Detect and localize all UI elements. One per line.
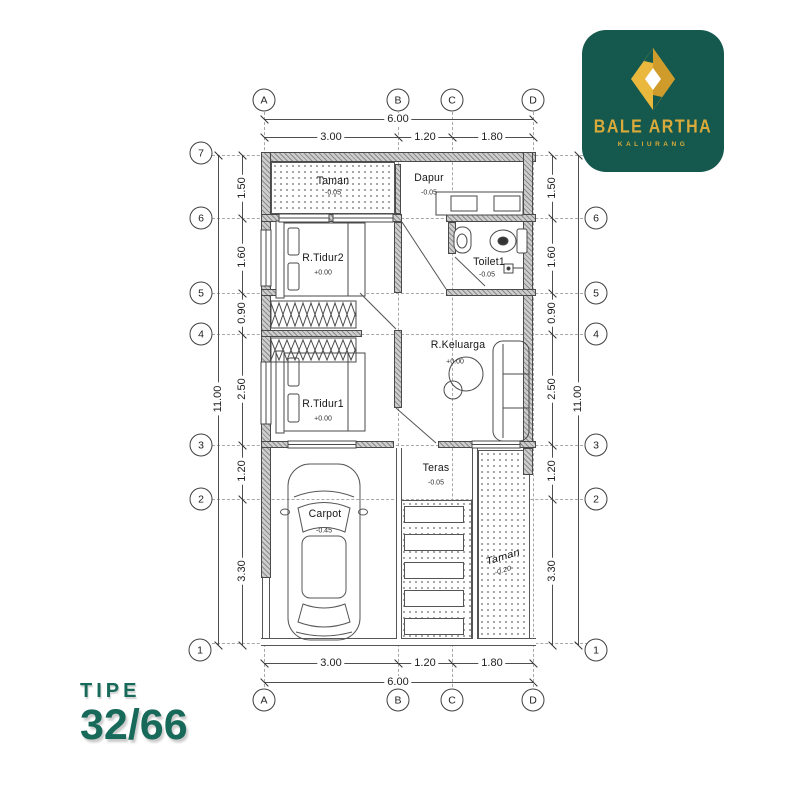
grid-line-col-d: [533, 112, 534, 692]
dim-top-seg-3: 1.80: [478, 131, 505, 143]
floor-drain-icon: [504, 264, 523, 273]
logo-title: BALE ARTHA: [594, 118, 712, 139]
room-label-rtidur1: R.Tidur1: [302, 398, 343, 411]
grid-bubble-row-2-right: 2: [585, 488, 608, 511]
grid-bubble-col-c-bottom: C: [441, 689, 464, 712]
grid-bubble-row-4-left: 4: [190, 323, 213, 346]
dim-right-seg-4: 2.50: [546, 375, 558, 402]
dim-left-seg-3: 0.90: [236, 299, 248, 326]
wall-right: [523, 152, 533, 448]
type-label: TIPE 32/66: [80, 681, 188, 747]
dim-right-total: 11.00: [572, 383, 584, 416]
dim-bottom-seg-3: 1.80: [478, 657, 505, 669]
grid-bubble-col-b-top: B: [387, 89, 410, 112]
dim-bottom-seg-2: 1.20: [411, 657, 438, 669]
room-elevation-toilet1: -0.05: [479, 272, 495, 279]
stepping-stone: [404, 618, 464, 635]
wall-row5-toilet: [446, 289, 536, 296]
dim-right-seg-6: 3.30: [546, 557, 558, 584]
garden-area-top: [271, 162, 395, 214]
wall-row3-west: [261, 441, 394, 448]
room-elevation-rtidur1: +0.00: [314, 416, 332, 423]
grid-bubble-row-5-left: 5: [190, 282, 213, 305]
dim-bottom-seg-1: 3.00: [317, 657, 344, 669]
dim-right-seg-3: 0.90: [546, 299, 558, 326]
plot-bottom-edge: [261, 638, 536, 646]
wall-top: [261, 152, 536, 162]
dim-right-seg-2: 1.60: [546, 243, 558, 270]
wall-stub-right: [523, 448, 533, 475]
garden-area-bottom: [478, 450, 530, 639]
grid-bubble-row-4-right: 4: [585, 323, 608, 346]
toilet-icon: [490, 229, 527, 253]
logo-subtitle: KALIURANG: [618, 141, 689, 148]
brand-logo: BALE ARTHA KALIURANG: [582, 30, 724, 172]
grid-bubble-row-3-left: 3: [190, 434, 213, 457]
diamond-logo-icon: [630, 47, 676, 111]
wall-row5-west: [261, 289, 362, 296]
wall-col-b-upper: [394, 222, 402, 293]
grid-bubble-row-1-left: 1: [189, 639, 212, 662]
dim-left-seg-4: 2.50: [236, 375, 248, 402]
stepping-stone: [404, 590, 464, 607]
sink-icon: [454, 227, 471, 253]
room-label-taman-top: Taman: [317, 175, 350, 188]
stepping-stone: [404, 534, 464, 551]
grid-bubble-col-d-top: D: [522, 89, 545, 112]
grid-bubble-row-1-right: 1: [585, 639, 608, 662]
dim-top-seg-2: 1.20: [411, 131, 438, 143]
room-label-dapur: Dapur: [414, 172, 444, 185]
type-prefix: TIPE: [80, 681, 188, 701]
wall-row6-east: [446, 214, 536, 222]
carport-left-edge: [262, 578, 270, 640]
room-label-teras: Teras: [423, 462, 450, 475]
room-elevation-dapur: -0.05: [421, 190, 437, 197]
dim-top-seg-1: 3.00: [317, 131, 344, 143]
type-value: 32/66: [80, 704, 188, 747]
dim-left-total: 11.00: [212, 383, 224, 416]
grid-bubble-row-3-right: 3: [585, 434, 608, 457]
room-elevation-rtidur2: +0.00: [314, 270, 332, 277]
dim-left-seg-1: 1.50: [236, 174, 248, 201]
stepping-stone: [404, 506, 464, 523]
grid-bubble-row-6-right: 6: [585, 207, 608, 230]
door-swing-line: [360, 222, 485, 443]
grid-bubble-col-d-bottom: D: [522, 689, 545, 712]
room-elevation-teras: -0.05: [428, 480, 444, 487]
stepping-stone: [404, 562, 464, 579]
dim-right-seg-1: 1.50: [546, 174, 558, 201]
wall-col-b-lower: [394, 330, 402, 408]
dim-right-seg-5: 1.20: [546, 457, 558, 484]
grid-bubble-row-5-right: 5: [585, 282, 608, 305]
floor-plan-page: { "logo": { "title": "BALE ARTHA", "subt…: [0, 0, 804, 804]
dim-left-seg-5: 1.20: [236, 457, 248, 484]
kitchen-counter-icon: [436, 192, 523, 215]
grid-bubble-col-b-bottom: B: [387, 689, 410, 712]
wall-taman-dapur-divider: [395, 164, 401, 214]
room-label-rkeluarga: R.Keluarga: [431, 339, 486, 352]
car-icon: [281, 464, 368, 640]
teras-garden-divider: [472, 448, 478, 639]
dim-left-seg-2: 1.60: [236, 243, 248, 270]
room-label-rtidur2: R.Tidur2: [302, 252, 343, 265]
room-elevation-carpot: -0.45: [316, 528, 332, 535]
grid-bubble-row-6-left: 6: [190, 207, 213, 230]
wall-col-c-toilet: [448, 222, 456, 254]
grid-bubble-row-7-left: 7: [190, 142, 213, 165]
carport-teras-divider: [396, 448, 402, 639]
dim-bottom-total: 6.00: [384, 676, 411, 688]
grid-bubble-col-a-top: A: [253, 89, 276, 112]
dim-left-seg-6: 3.30: [236, 557, 248, 584]
room-label-toilet1: Toilet1: [473, 256, 505, 269]
room-elevation-rkeluarga: +0.00: [446, 359, 464, 366]
wall-row6-west: [261, 214, 402, 222]
grid-bubble-col-c-top: C: [441, 89, 464, 112]
room-label-carpot: Carpot: [309, 508, 342, 521]
wall-row4: [261, 330, 362, 337]
grid-bubble-row-2-left: 2: [190, 488, 213, 511]
wall-row3-east: [438, 441, 536, 448]
dim-top-total: 6.00: [384, 113, 411, 125]
room-elevation-taman-top: -0.05: [325, 190, 341, 197]
grid-bubble-col-a-bottom: A: [253, 689, 276, 712]
